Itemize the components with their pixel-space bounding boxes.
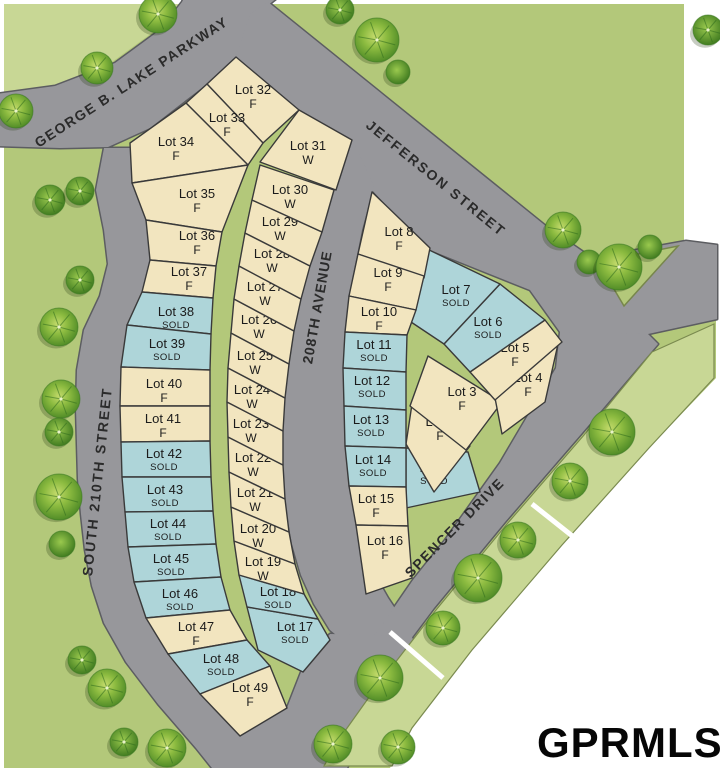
lot-49-status: F: [246, 695, 253, 709]
lot-13: Lot 13SOLD: [344, 406, 406, 448]
lot-15: Lot 15F: [349, 486, 408, 526]
lot-42-status: SOLD: [150, 462, 178, 473]
lot-43-label: Lot 43: [147, 482, 183, 497]
lot-39-label: Lot 39: [149, 336, 185, 351]
lot-6-label: Lot 6: [474, 314, 503, 329]
lot-42: Lot 42SOLD: [121, 441, 211, 477]
lot-17-label: Lot 17: [277, 619, 313, 634]
lot-6-status: SOLD: [474, 330, 502, 341]
lot-44-label: Lot 44: [150, 516, 186, 531]
lot-38-label: Lot 38: [158, 304, 194, 319]
lot-26-status: W: [253, 327, 265, 341]
lot-48-status: SOLD: [207, 667, 235, 678]
lot-4-status: F: [524, 385, 531, 399]
lot-24-status: W: [246, 397, 258, 411]
lot-25-status: W: [249, 363, 261, 377]
lot-27-status: W: [259, 294, 271, 308]
lot-35-status: F: [193, 201, 200, 215]
lot-18-status: SOLD: [264, 600, 292, 611]
lot-40-status: F: [160, 391, 167, 405]
lot-46-label: Lot 46: [162, 586, 198, 601]
lot-21-status: W: [249, 500, 261, 514]
lot-11: Lot 11SOLD: [343, 332, 407, 372]
lot-8-status: F: [395, 239, 402, 253]
lot-30-status: W: [284, 197, 296, 211]
lot-49-label: Lot 49: [232, 680, 268, 695]
lot-23-status: W: [245, 431, 257, 445]
lot-29-status: W: [274, 229, 286, 243]
lot-9-label: Lot 9: [374, 265, 403, 280]
lot-32-label: Lot 32: [235, 82, 271, 97]
lot-45: Lot 45SOLD: [128, 544, 221, 582]
lot-45-label: Lot 45: [153, 551, 189, 566]
lot-8-label: Lot 8: [385, 224, 414, 239]
lot-37-label: Lot 37: [171, 264, 207, 279]
lot-33-status: F: [223, 125, 230, 139]
watermark-gprmls: GPRMLS: [537, 719, 720, 766]
lot-45-status: SOLD: [157, 567, 185, 578]
plat-map-canvas: Lot 1SOLDLot 2FLot 3FLot 4FLot 5FLot 6SO…: [0, 0, 720, 768]
lot-32-status: F: [249, 97, 256, 111]
lot-34-status: F: [172, 149, 179, 163]
lot-13-status: SOLD: [357, 428, 385, 439]
lot-43-status: SOLD: [151, 498, 179, 509]
lot-12-status: SOLD: [358, 389, 386, 400]
lot-3-label: Lot 3: [448, 384, 477, 399]
lot-42-label: Lot 42: [146, 446, 182, 461]
lot-7-status: SOLD: [442, 298, 470, 309]
lot-3-status: F: [458, 399, 465, 413]
lot-11-status: SOLD: [360, 353, 388, 364]
lot-15-status: F: [372, 506, 379, 520]
lot-28-status: W: [266, 261, 278, 275]
lot-11-label: Lot 11: [356, 337, 391, 352]
lot-37-status: F: [185, 279, 192, 293]
lot-16-label: Lot 16: [367, 533, 403, 548]
lot-15-label: Lot 15: [358, 491, 394, 506]
lot-31-label: Lot 31: [290, 138, 326, 153]
lot-44: Lot 44SOLD: [125, 511, 216, 547]
lot-20-status: W: [252, 536, 264, 550]
lot-40: Lot 40F: [120, 367, 210, 406]
lot-41-status: F: [159, 426, 166, 440]
lot-31-status: W: [302, 153, 314, 167]
lot-47-label: Lot 47: [178, 619, 214, 634]
lot-14-label: Lot 14: [355, 452, 391, 467]
lot-30-label: Lot 30: [272, 182, 308, 197]
lot-22-status: W: [247, 465, 259, 479]
lot-33-label: Lot 33: [209, 110, 245, 125]
lot-12: Lot 12SOLD: [343, 368, 406, 410]
lot-14: Lot 14SOLD: [345, 446, 406, 487]
lot-17-status: SOLD: [281, 635, 309, 646]
lot-35-label: Lot 35: [179, 186, 215, 201]
lot-5-status: F: [511, 355, 518, 369]
lot-39-status: SOLD: [153, 352, 181, 363]
lot-19-status: W: [257, 569, 269, 583]
lot-41: Lot 41F: [120, 406, 210, 442]
lot-13-label: Lot 13: [353, 412, 389, 427]
lot-36-status: F: [193, 243, 200, 257]
lot-16-status: F: [381, 548, 388, 562]
lot-48-label: Lot 48: [203, 651, 239, 666]
lot-9-status: F: [384, 280, 391, 294]
lot-14-status: SOLD: [359, 468, 387, 479]
lot-7-label: Lot 7: [442, 282, 471, 297]
lot-41-label: Lot 41: [145, 411, 181, 426]
lot-46-status: SOLD: [166, 602, 194, 613]
lot-47-status: F: [192, 634, 199, 648]
lot-36-label: Lot 36: [179, 228, 215, 243]
lot-12-label: Lot 12: [354, 373, 390, 388]
lot-44-status: SOLD: [154, 532, 182, 543]
tree-icon: [690, 15, 720, 48]
lot-43: Lot 43SOLD: [122, 477, 213, 512]
lot-10-status: F: [375, 319, 382, 333]
lot-10-label: Lot 10: [361, 304, 397, 319]
lot-34-label: Lot 34: [158, 134, 194, 149]
plat-map: Lot 1SOLDLot 2FLot 3FLot 4FLot 5FLot 6SO…: [0, 0, 720, 768]
lot-40-label: Lot 40: [146, 376, 182, 391]
